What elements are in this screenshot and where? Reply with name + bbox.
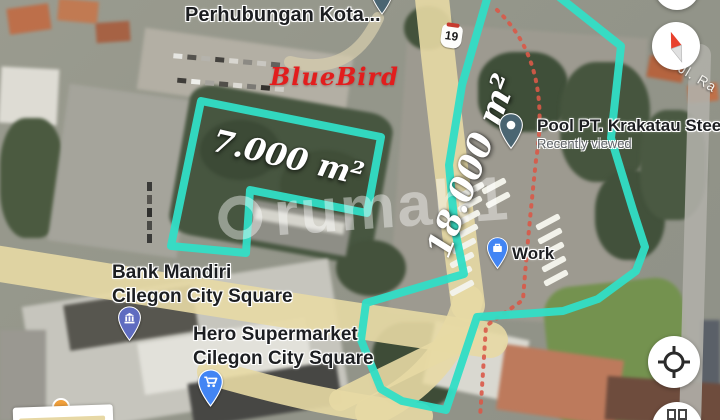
- poi-pool-status: Recently viewed: [537, 136, 720, 151]
- bluebird-brand-label: BlueBird: [270, 62, 399, 91]
- my-location-icon: [648, 336, 700, 388]
- card-content-strip: [19, 416, 105, 420]
- listing-card-partial[interactable]: [13, 404, 114, 420]
- map-canvas[interactable]: rumah1 Perhubungan Kota... BlueBird 7.00…: [0, 0, 720, 420]
- poi-pool-name[interactable]: Pool PT. Krakatau Steel: [537, 116, 720, 136]
- poi-hero-name[interactable]: Hero Supermarket: [193, 323, 374, 347]
- route-shield: 19: [440, 24, 464, 50]
- work-briefcase-pin-icon[interactable]: [486, 236, 509, 275]
- hero-cart-pin-icon[interactable]: [197, 368, 224, 413]
- district-label: Perhubungan Kota...: [185, 4, 381, 27]
- poi-hero-label[interactable]: Hero Supermarket Cilegon City Square: [193, 323, 374, 371]
- poi-work-label[interactable]: Work: [512, 244, 554, 264]
- pool-place-pin-icon[interactable]: [498, 112, 524, 155]
- compass-button[interactable]: [652, 22, 700, 70]
- compass-icon: [652, 22, 700, 70]
- map-button-partial-bottom[interactable]: [652, 402, 702, 420]
- place-pin-top-icon[interactable]: [370, 0, 394, 21]
- poi-bank-name[interactable]: Bank Mandiri: [112, 261, 293, 285]
- layers-icon: [652, 402, 702, 420]
- my-location-button[interactable]: [648, 336, 700, 388]
- watermark-logo-icon: [217, 194, 264, 241]
- bank-pin-icon[interactable]: [117, 305, 142, 347]
- poi-bank-label[interactable]: Bank Mandiri Cilegon City Square: [112, 261, 293, 309]
- route-shield-number: 19: [440, 24, 464, 50]
- poi-pool-label[interactable]: Pool PT. Krakatau Steel Recently viewed: [537, 116, 720, 151]
